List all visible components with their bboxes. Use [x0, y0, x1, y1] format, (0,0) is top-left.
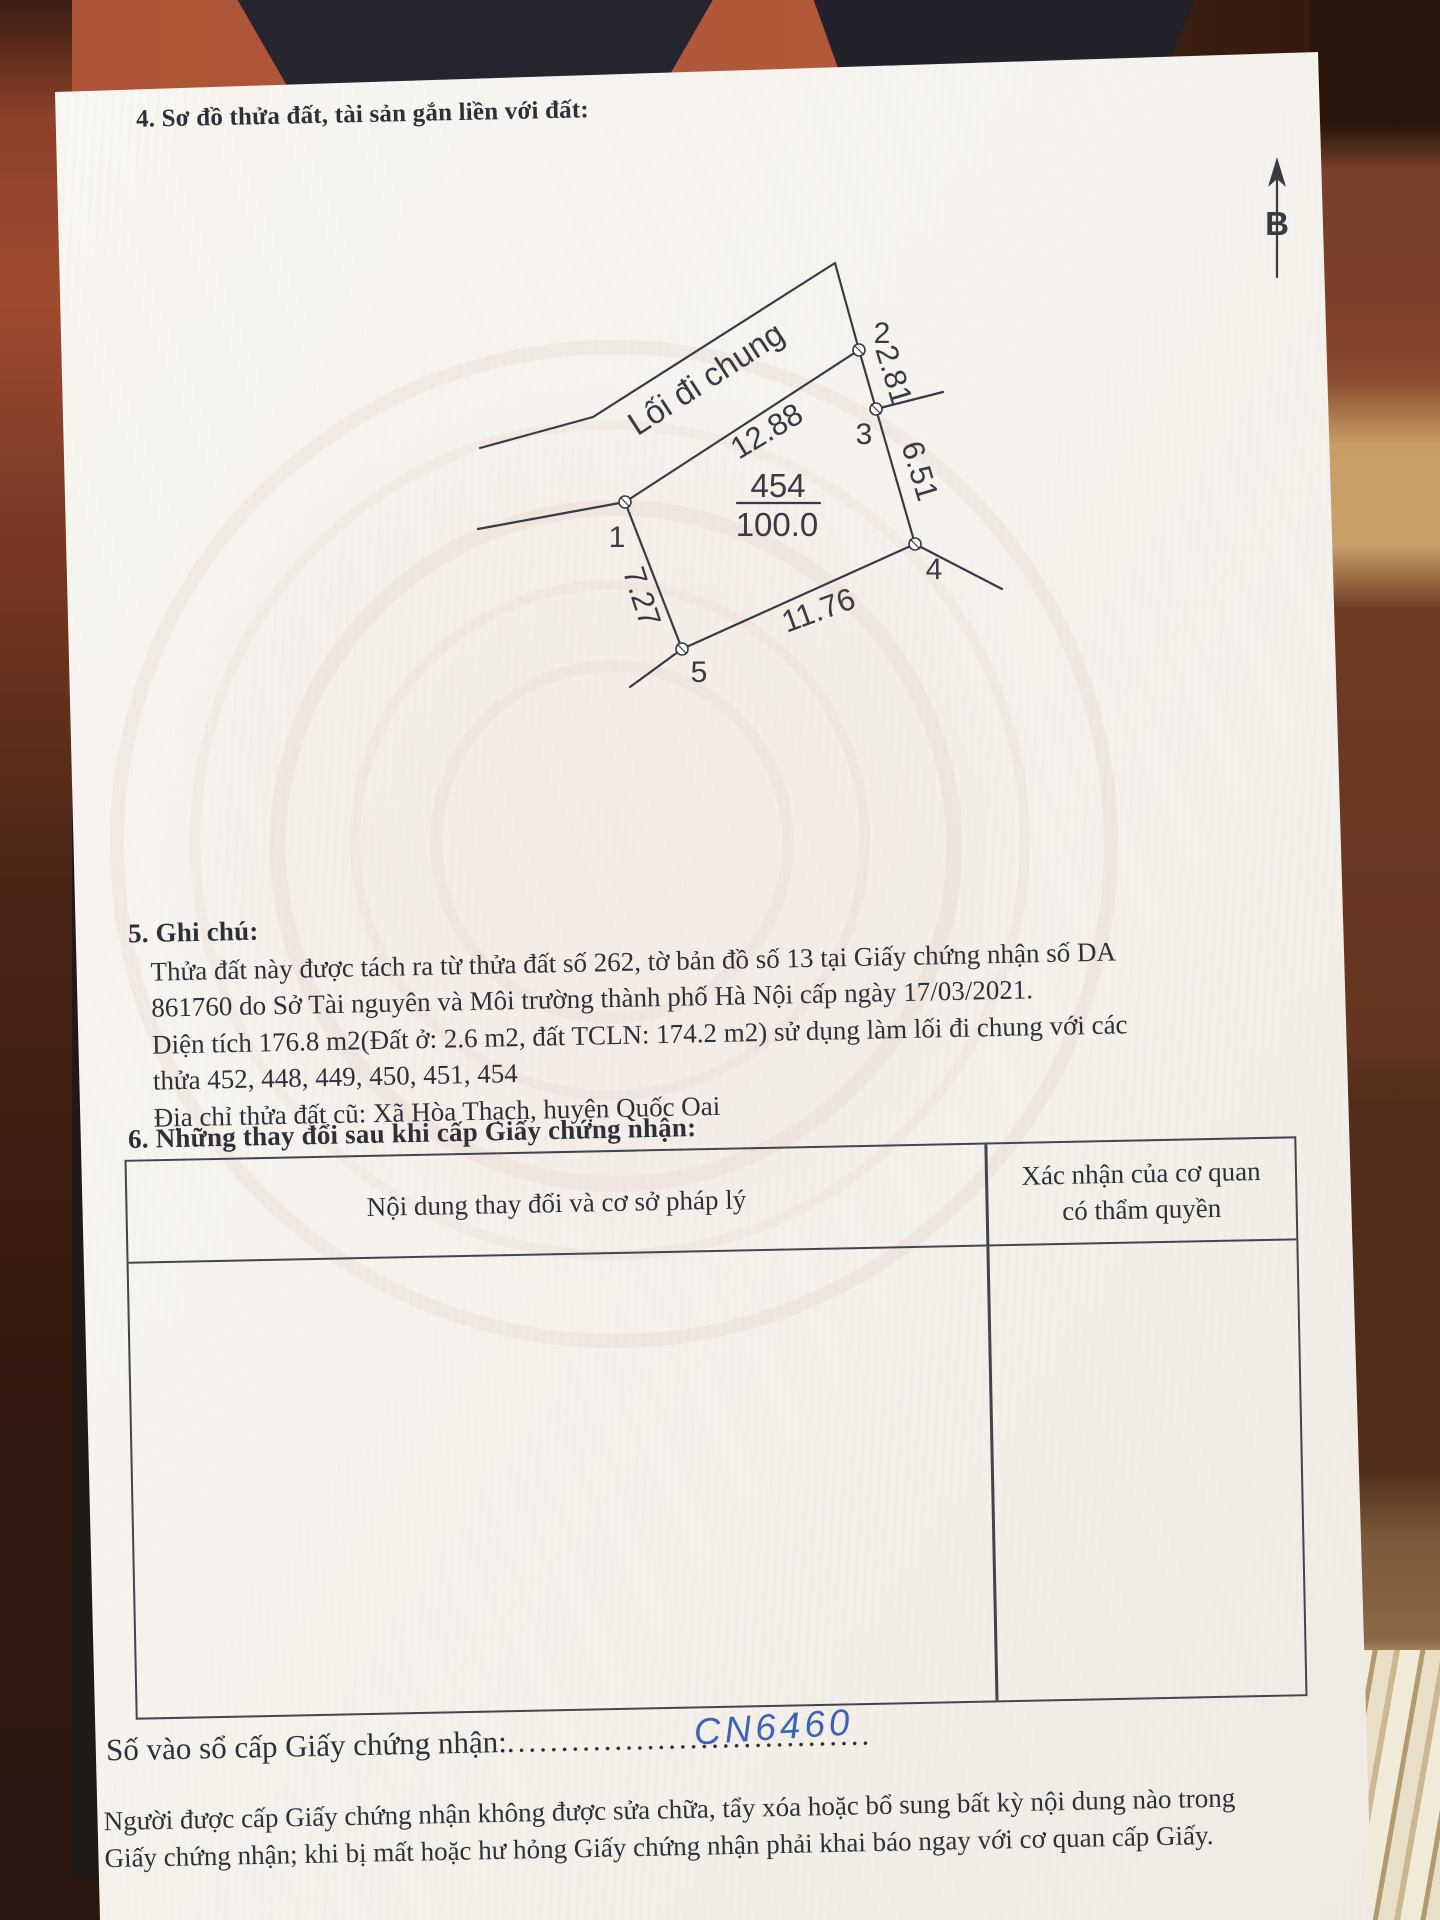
vertex-label-4: 4: [926, 553, 943, 586]
vertex-label-2: 2: [874, 317, 891, 350]
edge-label-6-51: 6.51: [894, 437, 945, 505]
section5-notes: Thửa đất này được tách ra từ thửa đất số…: [150, 930, 1274, 1135]
parcel-number-label: 454: [750, 467, 805, 504]
col2-header-line1: Xác nhận của cơ quan: [1021, 1153, 1261, 1194]
vertex-label-5: 5: [691, 656, 708, 689]
north-label: B: [1265, 205, 1289, 242]
changes-table: Nội dung thay đổi và cơ sở pháp lý Xác n…: [124, 1136, 1307, 1719]
changes-table-col1-header: Nội dung thay đổi và cơ sở pháp lý: [127, 1145, 987, 1262]
col2-header-line2: có thẩm quyền: [1062, 1190, 1222, 1229]
path-end-edge: [835, 263, 859, 350]
vertex-label-1: 1: [609, 521, 626, 554]
extension-line-v5: [630, 649, 682, 687]
registry-label: Số vào sổ cấp Giấy chứng nhận:: [106, 1724, 507, 1767]
land-plot-diagram: Lối đi chung 12.88 2.81 6.51 11.76 7.27 …: [0, 0, 1440, 780]
vertex-label-3: 3: [856, 418, 873, 451]
edge-label-11-76: 11.76: [777, 581, 860, 640]
section5-heading: 5. Ghi chú:: [128, 916, 259, 950]
parcel-area-label: 100.0: [736, 506, 819, 543]
extension-line-v1: [478, 502, 625, 529]
certificate-sheet: 4. Sơ đồ thửa đất, tài sản gắn liền với …: [0, 0, 1440, 1920]
edge-label-2-81: 2.81: [868, 341, 919, 409]
edge-label-12-88: 12.88: [724, 396, 809, 466]
changes-table-col2-header: Xác nhận của cơ quan có thẩm quyền: [986, 1138, 1296, 1244]
edge-label-7-27: 7.27: [616, 563, 668, 631]
